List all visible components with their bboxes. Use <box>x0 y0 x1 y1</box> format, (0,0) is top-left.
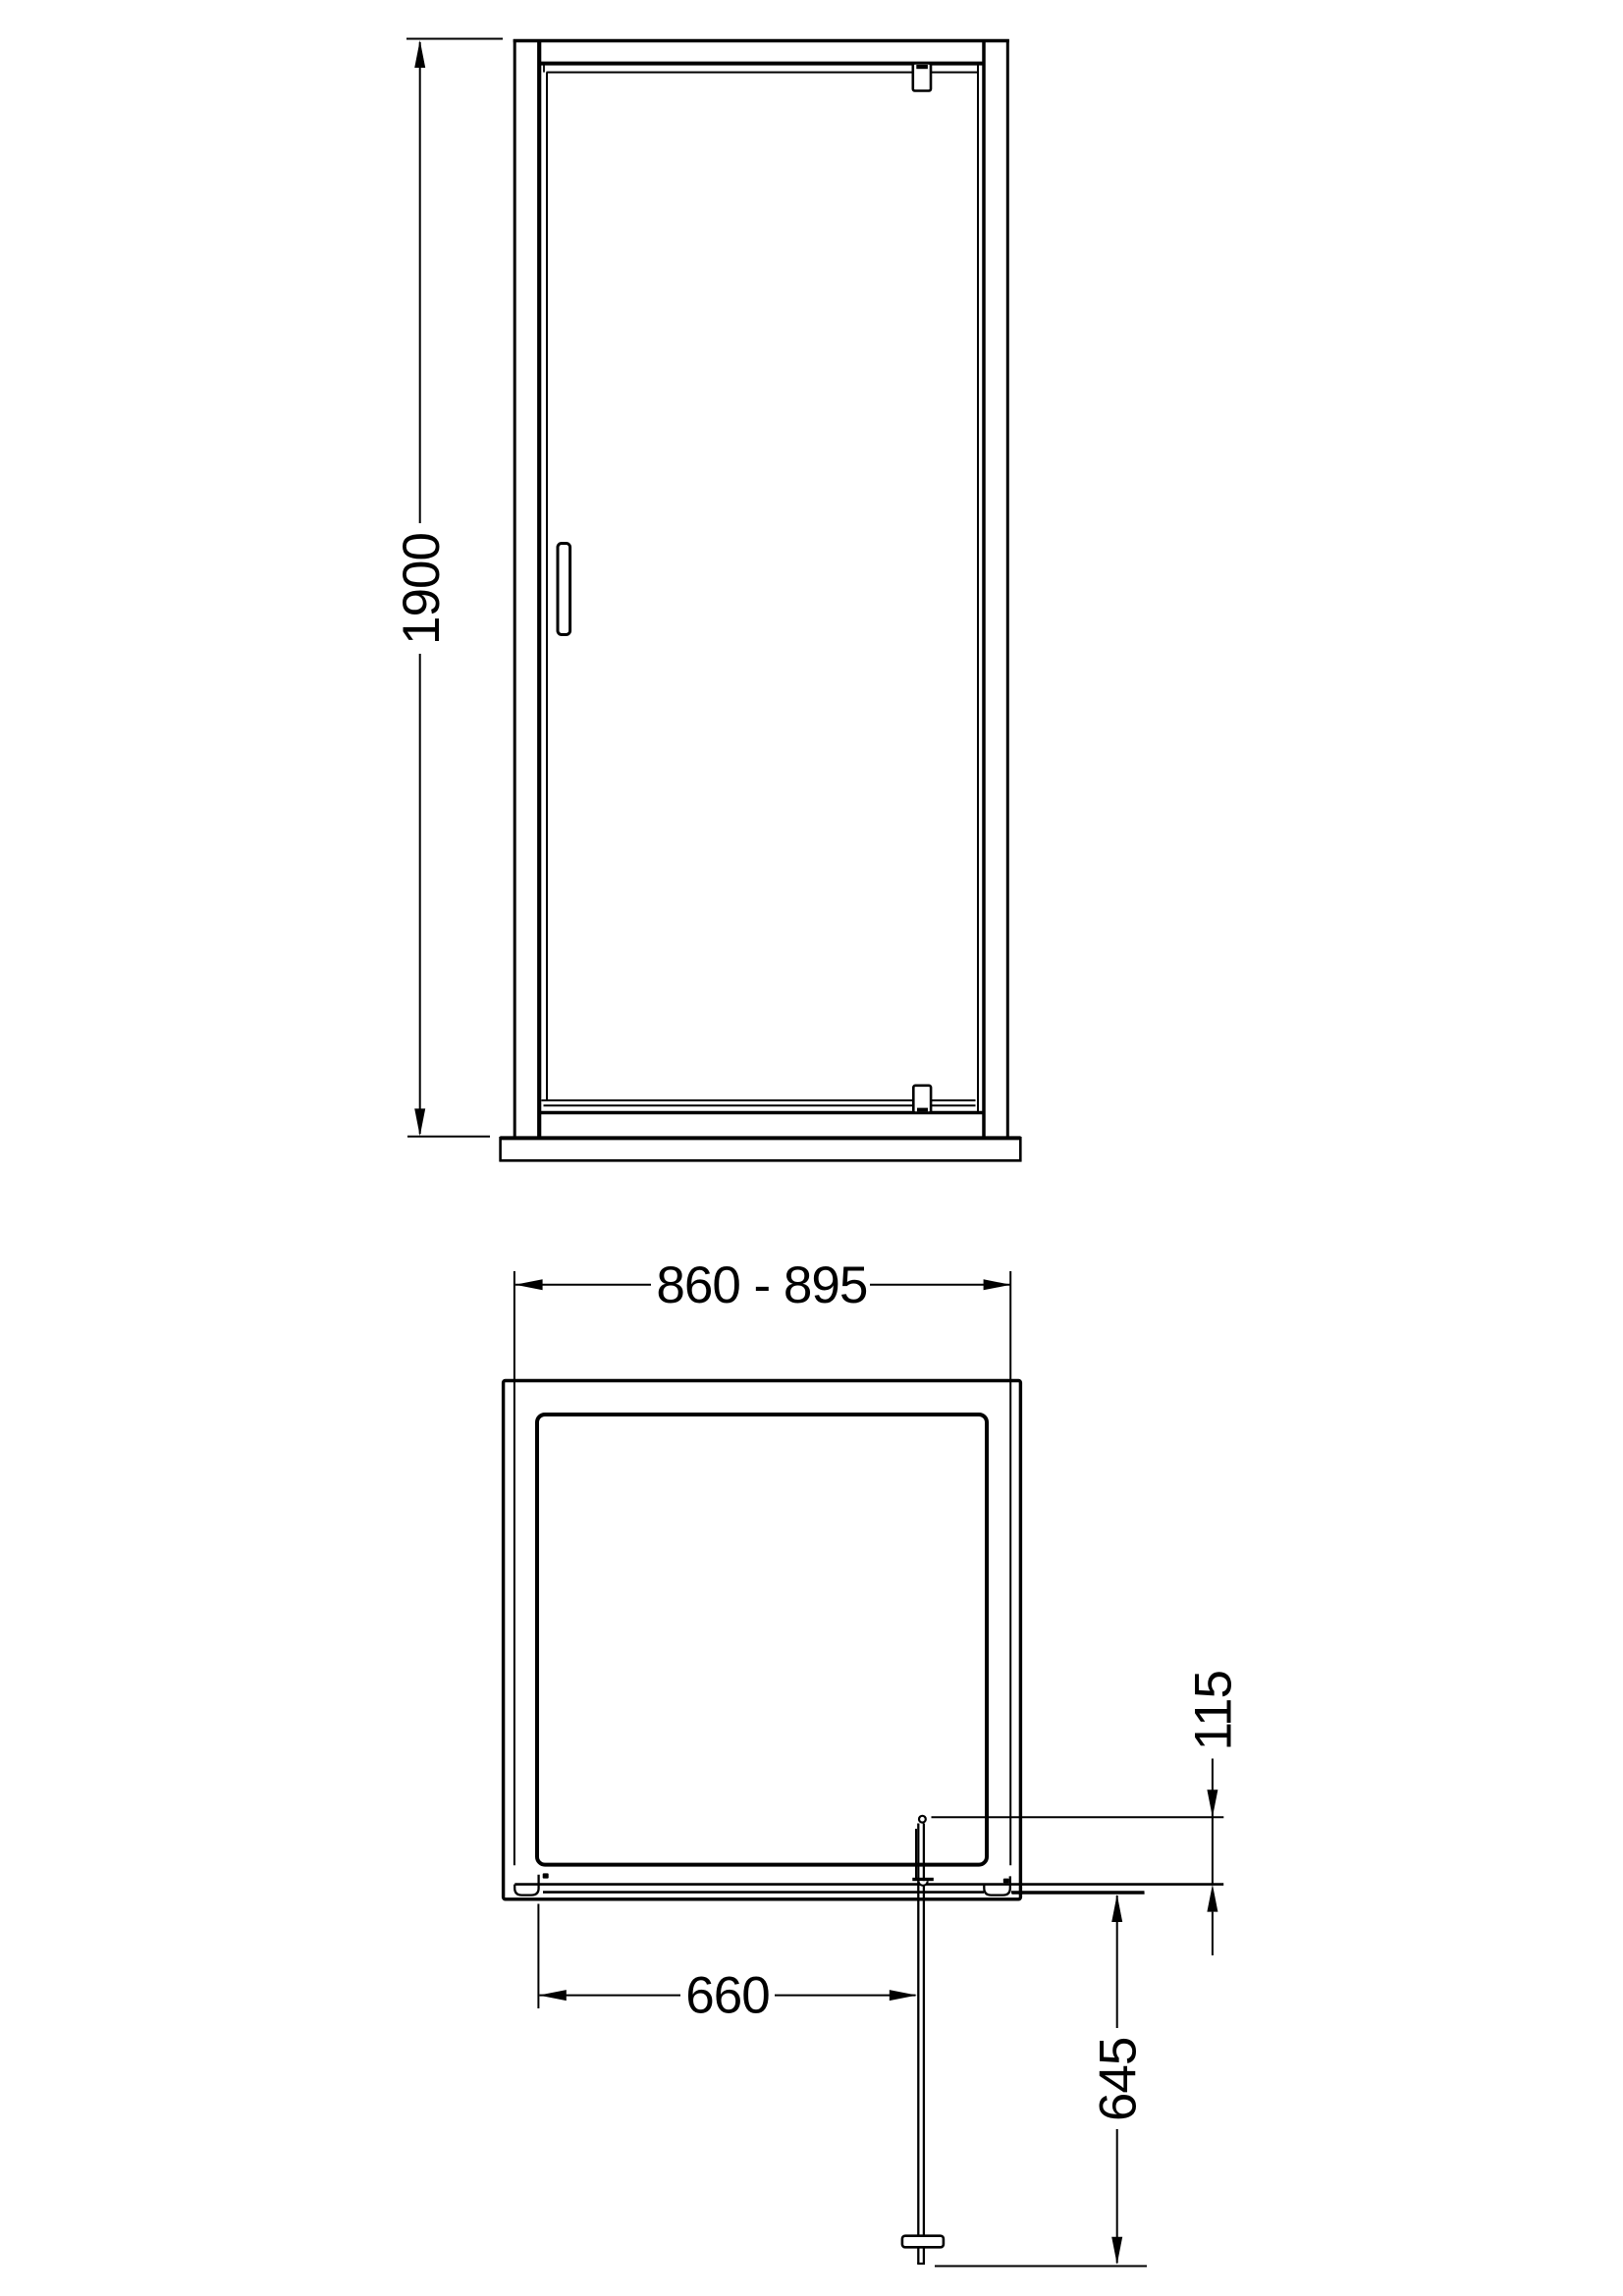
svg-text:1900: 1900 <box>393 533 451 645</box>
svg-text:645: 645 <box>1089 2038 1147 2121</box>
svg-text:860 - 895: 860 - 895 <box>656 1256 867 1314</box>
svg-text:115: 115 <box>1184 1671 1242 1751</box>
svg-text:660: 660 <box>685 1967 769 2025</box>
